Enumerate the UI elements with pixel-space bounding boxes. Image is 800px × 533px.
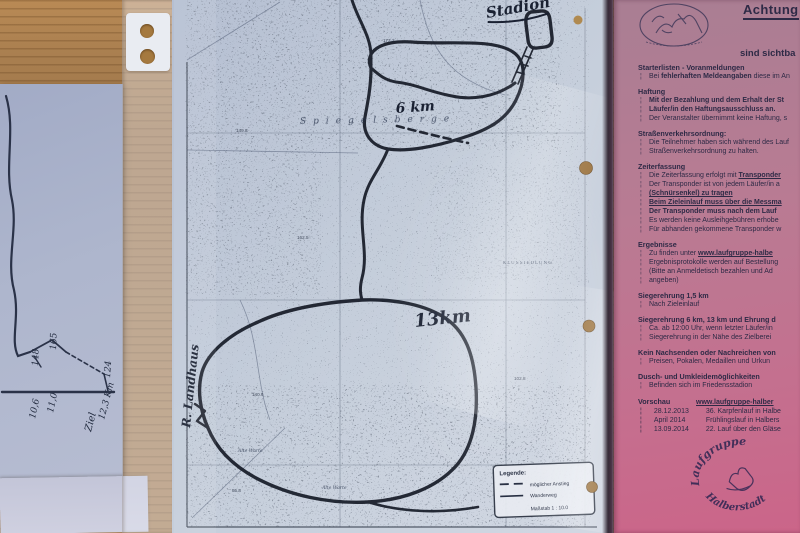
vorschau-event: 36. Karpfenlauf in Halbe: [706, 408, 781, 415]
section-line: ¦angeben): [638, 276, 800, 285]
line-bullet: ¦: [640, 105, 649, 114]
sketch-number: 124: [103, 360, 114, 378]
section-line: ¦Es werden keine Ausleihgebühren erhobe: [638, 216, 800, 225]
line-text: Siegerehrung in der Nähe des Zielberei: [649, 334, 771, 341]
section-heading: Haftung: [638, 87, 800, 96]
punch-hole: [583, 320, 595, 332]
line-text: Nach Zieleinlauf: [649, 301, 699, 308]
svg-text:Laufgruppe: Laufgruppe: [683, 433, 754, 489]
section-line: ¦(Schnürsenkel) zu tragen: [638, 189, 800, 198]
punch-hole: [140, 24, 154, 38]
sketch-number: 165: [49, 332, 60, 350]
line-text: Straßenverkehrsordnung zu halten.: [649, 148, 759, 155]
line-text: Ca. ab 12:00 Uhr, wenn letzter Läufer/in: [649, 325, 773, 332]
spot-height: 149.8: [236, 128, 248, 133]
stamp-runner-doodle: [727, 466, 754, 492]
spot-height: 140.6: [252, 392, 264, 397]
label-alte-warte: Alte Warte: [237, 448, 263, 454]
vorschau-row: ¦28.12.201336. Karpfenlauf in Halbe: [638, 407, 800, 416]
vorschau-date: 28.12.2013: [642, 407, 706, 416]
sketch-number: 148: [31, 348, 42, 366]
line-bullet: ¦: [640, 171, 649, 180]
section-line: ¦Straßenverkehrsordnung zu halten.: [638, 147, 800, 156]
vorschau-event: Frühlingslauf in Halbers: [706, 417, 780, 424]
section-line: ¦Der Veranstalter übernimmt keine Haftun…: [638, 114, 800, 123]
section-line: ¦(Bitte an Anmeldetisch bezahlen und Ad: [638, 267, 800, 276]
punch-strip: [126, 13, 170, 71]
label-klussiedlung: KLUSSIEDLUNG: [503, 261, 553, 266]
club-logo-stamp: [616, 0, 732, 52]
vorschau-url: www.laufgruppe-halber: [696, 399, 774, 406]
punch-hole: [587, 482, 598, 493]
line-bullet: ¦: [640, 300, 649, 309]
line-bullet: ¦: [640, 138, 649, 147]
line-text: Für abhanden gekommene Transponder w: [649, 226, 781, 233]
line-bullet: ¦: [640, 258, 649, 267]
line-text: Läufer/in den Haftungsausschluss an.: [649, 106, 775, 113]
vorschau-heading-row: Vorschauwww.laufgruppe-halber: [638, 397, 800, 407]
profile-line: [6, 96, 30, 356]
line-bullet: ¦: [640, 216, 649, 225]
vorschau-date: 13.09.2014: [642, 425, 706, 434]
legend-solid-sample: [500, 496, 523, 497]
line-text: Die Teilnehmer haben sich während des La…: [649, 139, 789, 146]
section-heading: Straßenverkehrsordnung:: [638, 129, 800, 138]
section-line: ¦Der Transponder ist von jedem Läufer/in…: [638, 180, 800, 189]
trail-map: Stadion 6 km 13km R. Landhaus Spiegelsbe…: [172, 0, 613, 533]
section-heading: Dusch- und Umkleidemöglichkeiten: [638, 372, 800, 381]
line-bullet: ¦: [640, 180, 649, 189]
section-line: ¦Befinden sich im Friedensstadion: [638, 381, 800, 390]
line-bullet: ¦: [640, 357, 649, 366]
line-bullet: ¦: [640, 114, 649, 123]
line-bullet: ¦: [640, 72, 649, 81]
profile-dashed: [66, 352, 104, 374]
section-heading: Ergebnisse: [638, 240, 800, 249]
line-bullet: ¦: [640, 198, 649, 207]
line-bullet: ¦: [640, 249, 649, 258]
section-line: ¦Bei fehlerhaften Meldeangaben diese im …: [638, 72, 800, 81]
spot-height: 172.2: [383, 38, 395, 43]
line-text: (Bitte an Anmeldetisch bezahlen und Ad: [649, 268, 773, 275]
line-text: Befinden sich im Friedensstadion: [649, 382, 752, 389]
line-text: Zu finden unter: [649, 250, 698, 257]
legend-solid-label: Wanderweg: [530, 492, 557, 499]
line-text: diese im An: [752, 73, 790, 80]
section-line: ¦Mit der Bezahlung und dem Erhalt der St: [638, 96, 800, 105]
line-bullet: ¦: [640, 276, 649, 285]
line-text: Beim Zieleinlauf muss über die Messma: [649, 199, 782, 206]
section-heading: Zeiterfassung: [638, 162, 800, 171]
pink-sections: Starterlisten - Voranmeldungen¦Bei fehle…: [638, 57, 800, 434]
sketch-number: Ziel: [83, 411, 99, 433]
line-bullet: ¦: [640, 207, 649, 216]
spot-height: 102.8: [514, 376, 526, 381]
sketch-number: 12,3 Km: [97, 381, 117, 420]
line-text: Bei: [649, 73, 661, 80]
vorschau-date: April 2014: [642, 416, 706, 425]
section-line: ¦Ergebnisprotokolle werden auf Bestellun…: [638, 258, 800, 267]
line-text: Es werden keine Ausleihgebühren erhobe: [649, 217, 779, 224]
section-line: ¦Zu finden unter www.laufgruppe-halbe: [638, 249, 800, 258]
vorschau-row: ¦April 2014Frühlingslauf in Halbers: [638, 416, 800, 425]
section-line: ¦Ca. ab 12:00 Uhr, wenn letzter Läufer/i…: [638, 324, 800, 333]
section-line: ¦Beim Zieleinlauf muss über die Messma: [638, 198, 800, 207]
line-bullet: ¦: [640, 96, 649, 105]
achtung-heading: Achtung: [743, 2, 799, 20]
section-line: ¦Preisen, Pokalen, Medaillen und Urkun: [638, 357, 800, 366]
section-line: ¦Läufer/in den Haftungsausschluss an.: [638, 105, 800, 114]
label-alte-warte: Alte Warte: [321, 485, 347, 491]
line-text: Transponder: [738, 172, 780, 179]
line-bullet: ¦: [640, 189, 649, 198]
line-text: Ergebnisprotokolle werden auf Bestellung: [649, 259, 778, 266]
section-heading: Siegerehrung 6 km, 13 km und Ehrung d: [638, 315, 800, 324]
section-line: ¦Für abhanden gekommene Transponder w: [638, 225, 800, 234]
line-text: fehlerhaften Meldeangaben: [661, 73, 752, 80]
punch-hole: [574, 16, 583, 25]
legend-title: Legende:: [499, 470, 526, 477]
line-text: Der Transponder muss nach dem Lauf: [649, 208, 777, 215]
line-text: Der Veranstalter übernimmt keine Haftung…: [649, 115, 787, 122]
section-line: ¦Nach Zieleinlauf: [638, 300, 800, 309]
section-line: ¦Die Zeiterfassung erfolgt mit Transpond…: [638, 171, 800, 180]
photo-scene: 14816512411,010,612,3 KmZiel: [0, 0, 800, 533]
legend-box: Legende: möglicher Anstieg Wanderweg Maß…: [493, 462, 595, 517]
line-text: Preisen, Pokalen, Medaillen und Urkun: [649, 358, 770, 365]
section-line: ¦Siegerehrung in der Nähe des Zielberei: [638, 333, 800, 342]
line-text: Der Transponder ist von jedem Läufer/in …: [649, 181, 780, 188]
stamp-text-top: Laufgruppe: [683, 433, 754, 489]
sketch-number: 11,0: [46, 392, 60, 414]
stamp-doodle: [727, 484, 751, 492]
section-line: ¦Der Transponder muss nach dem Lauf: [638, 207, 800, 216]
line-text: (Schnürsenkel) zu tragen: [649, 190, 733, 197]
section-heading: Kein Nachsenden oder Nachreichen von: [638, 348, 800, 357]
line-text: Mit der Bezahlung und dem Erhalt der St: [649, 97, 784, 104]
section-line: ¦Die Teilnehmer haben sich während des L…: [638, 138, 800, 147]
line-text: Die Zeiterfassung erfolgt mit: [649, 172, 738, 179]
sketch-number-labels: 14816512411,010,612,3 KmZiel: [28, 332, 117, 433]
punch-hole: [580, 162, 593, 175]
logo-doodle: [652, 14, 686, 33]
vorschau-heading: Vorschau: [638, 397, 696, 406]
spot-height: 162.5: [297, 235, 309, 240]
line-bullet: ¦: [640, 147, 649, 156]
line-bullet: ¦: [640, 324, 649, 333]
line-bullet: ¦: [640, 225, 649, 234]
section-heading: Starterlisten - Voranmeldungen: [638, 63, 800, 72]
line-text: www.laufgruppe-halbe: [698, 250, 773, 257]
line-bullet: ¦: [640, 381, 649, 390]
section-heading: Siegerehrung 1,5 km: [638, 291, 800, 300]
sleeve-left-margin: [122, 0, 172, 533]
line-bullet: ¦: [640, 333, 649, 342]
line-text: angeben): [649, 277, 679, 284]
sketch-number: 10,6: [28, 398, 42, 420]
spot-height: 95.8: [232, 488, 241, 493]
punch-hole: [140, 49, 155, 64]
line-bullet: ¦: [640, 267, 649, 276]
